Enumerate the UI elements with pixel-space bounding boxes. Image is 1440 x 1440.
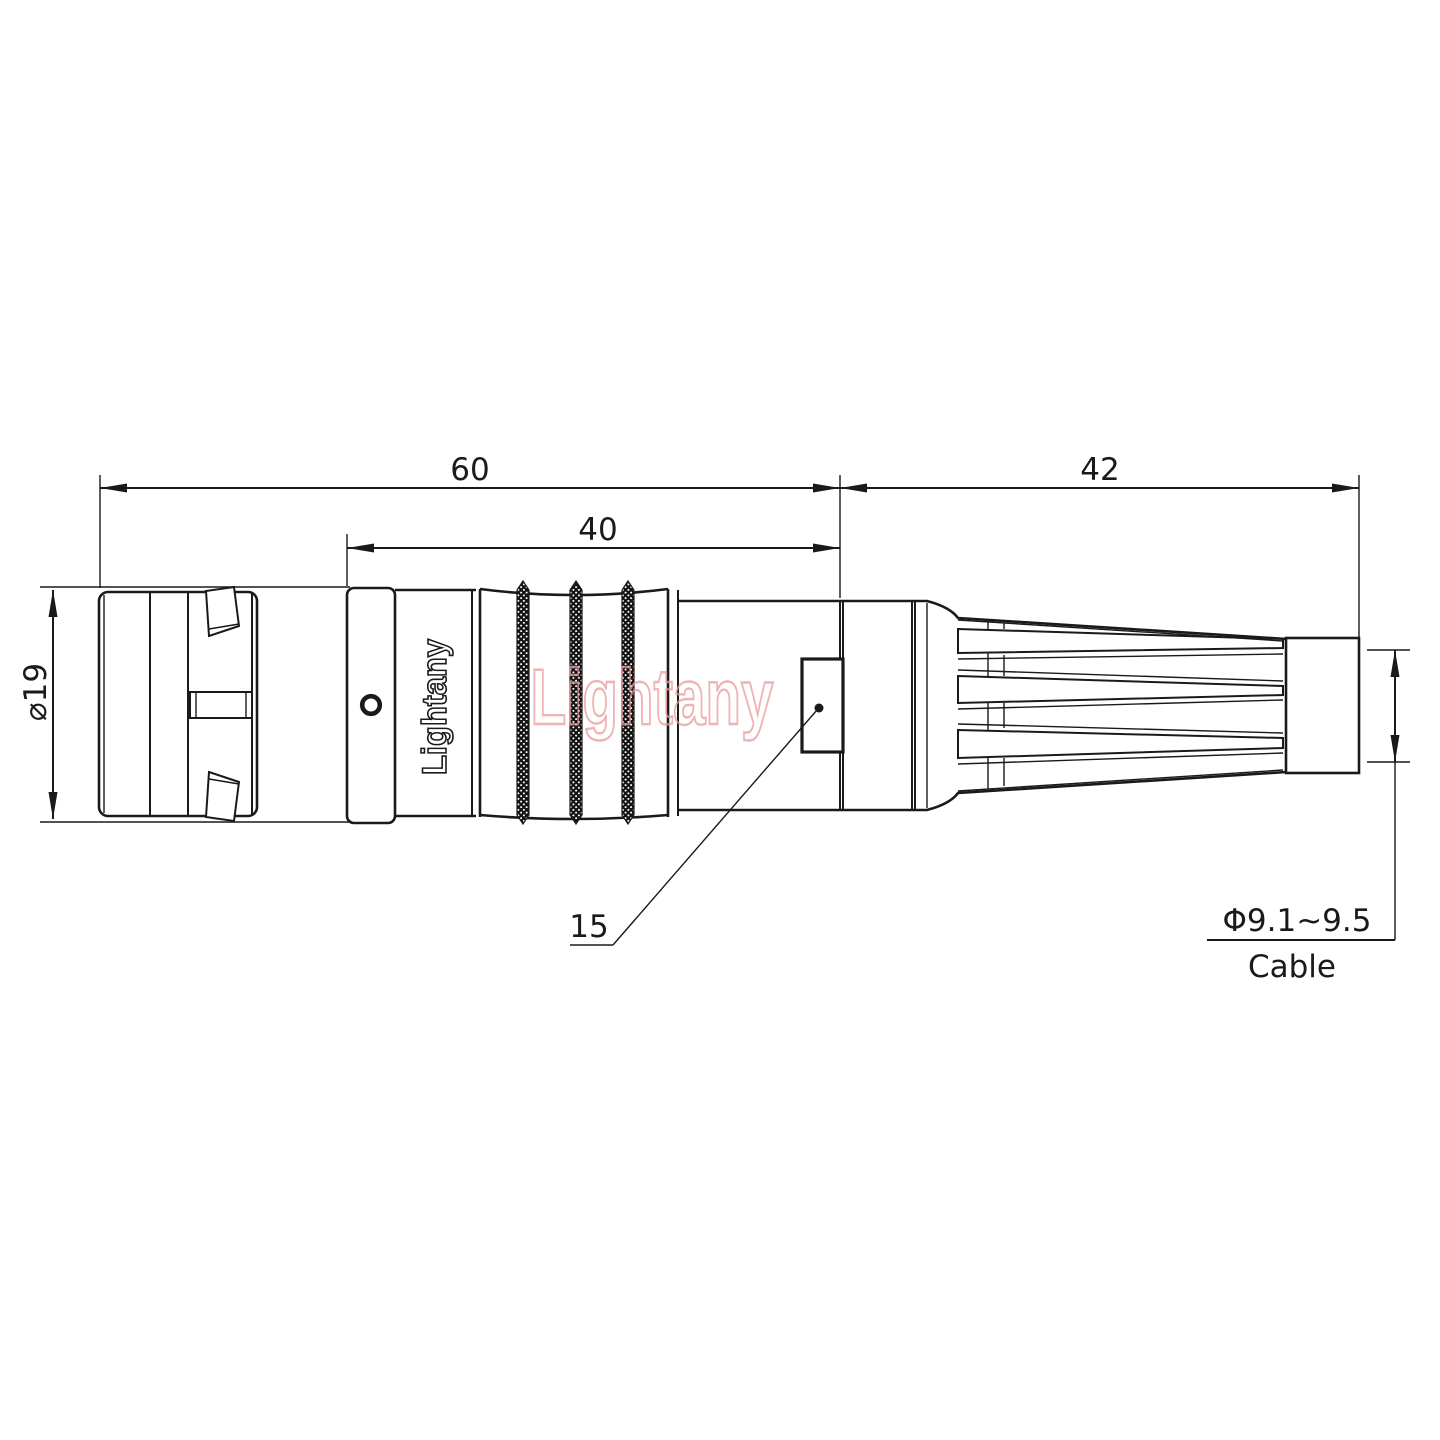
drawing-canvas: 60 40 42 ⌀19 (0, 0, 1440, 1440)
arrowhead (49, 792, 58, 819)
arrowhead (1391, 735, 1400, 762)
dimension-overall-length: 60 (100, 452, 840, 598)
cable-exit-cap (1286, 638, 1359, 773)
dim-label-60: 60 (450, 452, 489, 488)
arrowhead (100, 484, 127, 493)
dimension-body-length: 40 (347, 512, 840, 586)
arrowhead (49, 590, 58, 617)
strain-relief-boot (915, 601, 1359, 810)
arrowhead (1332, 484, 1359, 493)
watermark-text: Lightany (531, 652, 774, 741)
collar-ring (347, 588, 395, 823)
dim-label-40: 40 (578, 512, 617, 548)
dimension-rear-length: 42 (840, 452, 1359, 638)
cable-word-label: Cable (1248, 949, 1336, 985)
cable-diameter-label: Φ9.1~9.5 (1223, 903, 1372, 939)
connector-technical-drawing: 60 40 42 ⌀19 (0, 0, 1440, 1440)
arrowhead (1391, 650, 1400, 677)
boot-slot (958, 730, 1283, 758)
dim-label-15: 15 (569, 909, 608, 945)
arrowhead (813, 544, 840, 553)
dim-label-42: 42 (1080, 452, 1119, 488)
coupling-nut (843, 601, 915, 810)
shell-logo-text: Lightany (416, 639, 454, 775)
knurl-band (517, 581, 529, 824)
arrowhead (840, 484, 867, 493)
dimension-shell-diameter: ⌀19 (18, 587, 350, 822)
front-shell (99, 587, 257, 821)
arrowhead (347, 544, 374, 553)
collar-outline (347, 588, 395, 823)
key-window (190, 692, 252, 718)
arrowhead (813, 484, 840, 493)
mid-barrel: Lightany (395, 590, 476, 816)
boot-slot (958, 629, 1283, 653)
dim-label-dia19: ⌀19 (18, 663, 54, 721)
